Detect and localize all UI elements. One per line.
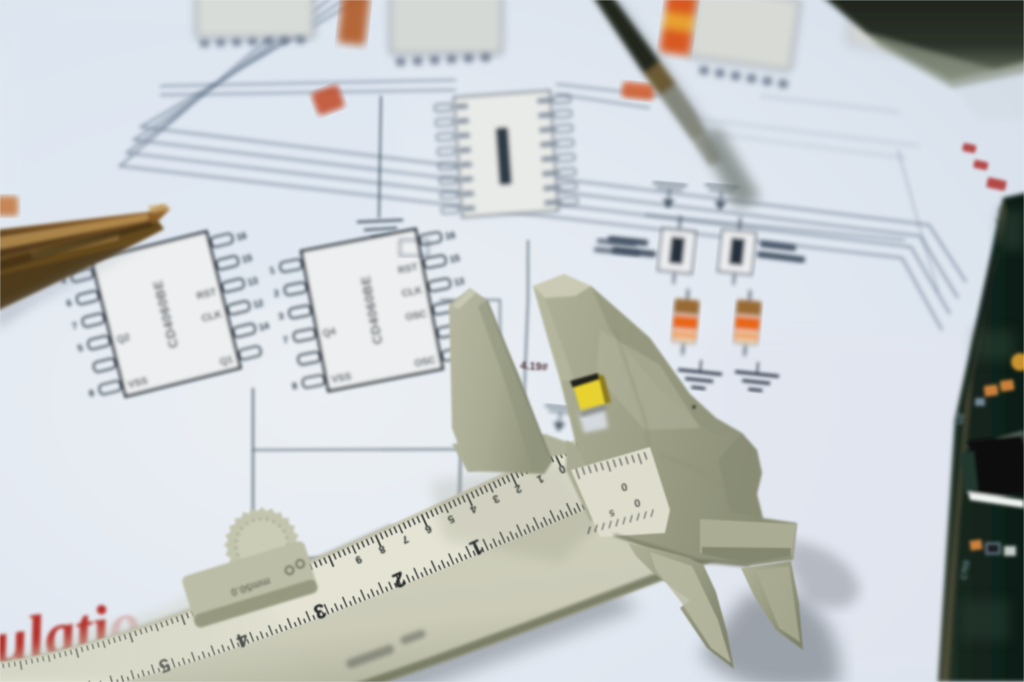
svg-text:16: 16 xyxy=(444,230,456,242)
svg-text:15: 15 xyxy=(449,253,461,265)
svg-text:U2: U2 xyxy=(954,412,966,425)
svg-text:4.19#: 4.19# xyxy=(520,360,548,374)
svg-text:13: 13 xyxy=(453,276,465,288)
